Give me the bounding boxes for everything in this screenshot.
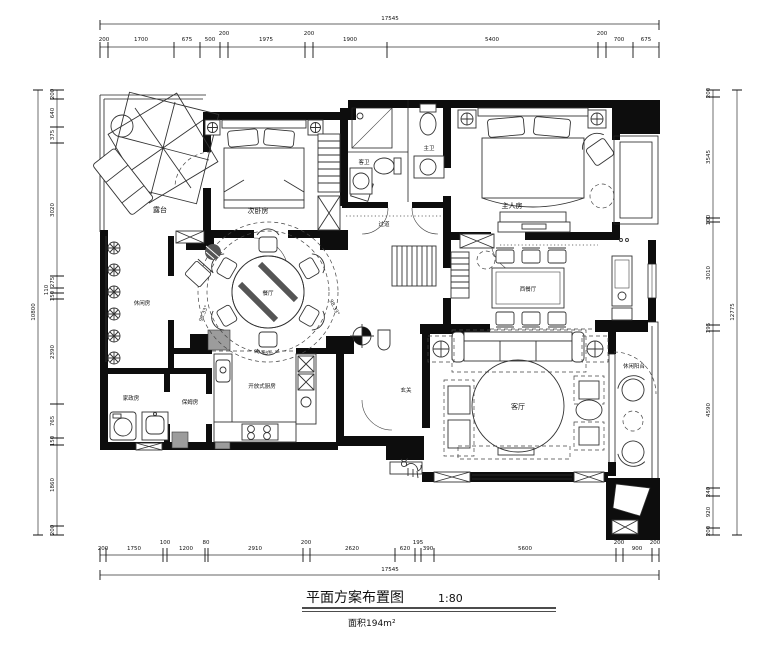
label-dining-round: 餐厅 — [262, 289, 274, 297]
dim-left-6: 150 — [50, 290, 56, 301]
master-headboard — [478, 108, 588, 116]
fridge-cabinet — [296, 354, 316, 424]
dim-bot-0: 200 — [98, 546, 109, 552]
dining-chair — [496, 312, 514, 327]
side-table-lamp — [428, 336, 454, 362]
dim-top-10: 700 — [614, 37, 625, 43]
dim-top-4: 200 — [219, 31, 230, 37]
dining-chair — [297, 251, 328, 282]
rattan-chair — [616, 438, 650, 470]
floorplan-page: 200 1700 675 500 200 1975 200 1900 5400 … — [0, 0, 780, 645]
angle-annotation: 90.53° — [253, 349, 271, 357]
dim-right-8: 200 — [706, 525, 712, 536]
dim-top-9: 200 — [597, 31, 608, 37]
dining-chair — [522, 312, 540, 327]
dim-right-6: 240 — [706, 486, 712, 497]
dining-chair — [257, 229, 279, 252]
drawing-title: 平面方案布置图 — [306, 589, 404, 606]
balcony — [615, 372, 649, 469]
dim-top-0: 200 — [99, 37, 110, 43]
living-room — [428, 330, 656, 459]
dim-right-3: 3010 — [706, 266, 712, 280]
dim-right-total: 12775 — [730, 303, 736, 321]
dim-bot-13: 900 — [632, 546, 643, 552]
toilet — [420, 104, 436, 135]
title-block: 平面方案布置图 1:80 面积194m² — [302, 589, 556, 629]
dim-bot-10: 390 — [423, 546, 434, 552]
label-leisure-balcony: 休闲阳台 — [623, 362, 646, 370]
label-leisure-room: 休闲房 — [134, 299, 151, 307]
dining-chair — [477, 251, 495, 269]
column-marker — [350, 324, 390, 350]
utility-room — [110, 412, 168, 440]
label-corridor: 过道 — [378, 220, 390, 228]
dim-left-3: 3020 — [50, 203, 56, 217]
dimension-bottom: 200 1750 100 1200 80 2910 200 2620 620 1… — [98, 540, 661, 580]
dim-bot-4: 80 — [203, 540, 210, 546]
dim-bot-14: 200 — [650, 540, 661, 546]
rattan-chair — [615, 372, 649, 405]
bath-door-arcs — [362, 208, 438, 234]
dim-top-total: 17545 — [381, 16, 399, 22]
label-bedroom2: 次卧房 — [248, 206, 269, 215]
shelf-unit — [451, 252, 469, 298]
washing-machine — [110, 412, 136, 440]
sink — [350, 168, 372, 194]
dim-bot-2: 100 — [160, 540, 171, 546]
dim-left-1: 640 — [50, 107, 56, 118]
label-utility-room: 家政房 — [123, 394, 140, 402]
dim-left-total: 10800 — [31, 303, 37, 321]
angle-annotation: 98.33° — [328, 299, 341, 317]
label-master-bedroom: 主人房 — [502, 201, 523, 210]
drawing-area: 面积194m² — [348, 617, 396, 629]
master-mattress — [482, 138, 584, 198]
balcony-door-arc — [614, 352, 656, 394]
kitchen — [212, 351, 316, 442]
dim-bot-12: 200 — [614, 540, 625, 546]
bed2-mattress — [224, 148, 304, 200]
shower — [352, 108, 392, 148]
dim-top-8: 5400 — [485, 37, 499, 43]
dim-left-0: 200 — [50, 88, 56, 99]
dim-right-1: 3545 — [706, 150, 712, 164]
bed2-headboard — [222, 120, 306, 128]
dim-right-4: 195 — [706, 322, 712, 333]
dimension-left: 200 640 375 3020 275 110 150 2390 765 15… — [31, 88, 64, 535]
dining-chair — [548, 248, 566, 263]
toilet — [374, 158, 401, 174]
dining-chair — [522, 248, 540, 263]
dim-bot-11: 5600 — [518, 546, 532, 552]
bedroom2 — [205, 120, 373, 272]
dim-left-9: 150 — [50, 435, 56, 446]
dim-left-11: 200 — [50, 524, 56, 535]
pouf — [590, 184, 614, 208]
dining-chair — [297, 302, 328, 333]
dim-left-2: 375 — [50, 129, 56, 140]
armchair — [574, 422, 604, 450]
dim-right-0: 200 — [706, 87, 712, 98]
dim-bot-total: 17545 — [381, 567, 399, 573]
dim-top-6: 200 — [304, 31, 315, 37]
armchair — [185, 259, 213, 287]
wine-cabinet — [612, 256, 632, 320]
sideboard — [392, 246, 436, 286]
dim-right-5: 4590 — [706, 403, 712, 417]
label-living-room: 客厅 — [511, 402, 525, 411]
dim-top-11: 675 — [641, 37, 652, 43]
dim-top-2: 675 — [182, 37, 193, 43]
dim-bot-1: 1750 — [127, 546, 141, 552]
label-kitchen: 开放式厨房 — [248, 382, 276, 390]
dining-chair — [548, 312, 566, 327]
chaise — [444, 380, 474, 456]
sofa — [452, 332, 584, 362]
tv-console — [458, 446, 570, 459]
dim-left-8: 765 — [50, 415, 56, 426]
dim-left-10: 1860 — [50, 478, 56, 492]
dim-left-4: 275 — [50, 276, 56, 287]
dining-chair — [496, 248, 514, 263]
bed-bench — [500, 212, 566, 222]
bathrooms — [346, 100, 444, 234]
master-bedroom — [458, 108, 616, 274]
plant-row — [108, 242, 120, 364]
dim-bot-3: 1200 — [179, 546, 193, 552]
entry-door-arc — [362, 400, 392, 430]
wardrobe — [318, 134, 340, 230]
west-dining — [451, 234, 632, 327]
dim-top-7: 1900 — [343, 37, 357, 43]
dim-right-2: 100 — [706, 214, 712, 225]
dimension-right: 200 3545 100 3010 195 4590 240 920 200 1… — [706, 87, 742, 536]
label-master-bath: 主卫 — [423, 144, 435, 152]
sink — [414, 156, 444, 178]
laundry-sink — [142, 412, 168, 440]
lounge-chair — [92, 148, 153, 216]
dimension-top: 200 1700 675 500 200 1975 200 1900 5400 … — [99, 16, 659, 58]
side-table — [576, 400, 602, 420]
dim-bot-7: 2620 — [345, 546, 359, 552]
dim-top-5: 1975 — [259, 37, 273, 43]
balcony-table — [623, 411, 643, 431]
dim-top-3: 500 — [205, 37, 216, 43]
label-terrace: 露台 — [153, 205, 167, 214]
dim-bot-8: 620 — [400, 546, 411, 552]
dim-bot-6: 200 — [301, 540, 312, 546]
floorplan-canvas: 200 1700 675 500 200 1975 200 1900 5400 … — [0, 0, 780, 645]
dim-right-7: 920 — [706, 506, 712, 517]
dim-left-7: 2390 — [50, 345, 56, 359]
dim-bot-5: 2910 — [248, 546, 262, 552]
label-guest-bath: 客卫 — [358, 158, 370, 166]
planter — [378, 330, 390, 350]
drawing-scale: 1:80 — [438, 592, 463, 605]
dim-top-1: 1700 — [134, 37, 148, 43]
label-dining-west: 西餐厅 — [520, 285, 537, 293]
label-maid-room: 保姆房 — [182, 398, 199, 406]
label-entry: 玄关 — [400, 386, 412, 394]
